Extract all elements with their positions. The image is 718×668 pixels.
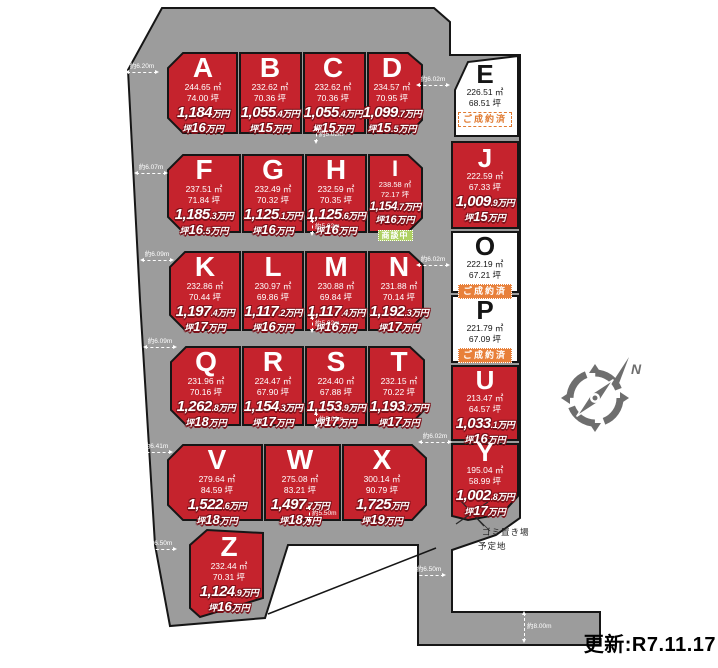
tsubo-prefix: 坪 — [208, 603, 217, 613]
price-value: 1,125 — [244, 206, 279, 223]
tsubo-value: 16 — [191, 120, 205, 135]
dimension-marker: 約6.02m — [418, 76, 448, 86]
price-unit: .3万円 — [405, 308, 429, 318]
price-value: 1,033 — [456, 415, 491, 432]
plot-Q-letter: Q — [173, 349, 239, 376]
plot-O-area-tsubo: 67.21 坪 — [452, 270, 518, 281]
plot-B-price: 1,055.4万円 — [238, 105, 302, 122]
price-unit: .1万円 — [491, 420, 515, 430]
tsubo-unit: 万円 — [208, 323, 226, 333]
dimension-arrow — [142, 260, 172, 261]
dimension-text: 約6.02m — [423, 433, 448, 440]
dimension-arrow — [418, 265, 448, 266]
plot-J-letter: J — [452, 146, 518, 171]
plot-B-letter: B — [238, 55, 302, 82]
plot-N-tsubo-price: 坪17万円 — [367, 320, 431, 334]
tsubo-value: 18 — [194, 414, 208, 429]
plot-T-price: 1,193.7万円 — [367, 399, 431, 416]
dimension-text: 約8.00m — [527, 623, 552, 630]
tsubo-unit: 万円 — [488, 507, 506, 517]
dimension-arrow — [141, 452, 171, 453]
plot-Q-tsubo-price: 坪18万円 — [173, 415, 239, 429]
plot-F: F237.51 ㎡71.84 坪1,185.3万円坪16.5万円 — [170, 157, 238, 237]
price-unit: .7万円 — [397, 202, 421, 212]
plot-T: T232.15 ㎡70.22 坪1,193.7万円坪17万円 — [367, 349, 431, 429]
dimension-marker: 約6.02m — [418, 256, 448, 266]
tsubo-unit: 万円 — [402, 418, 420, 428]
tsubo-prefix: 坪 — [196, 516, 205, 526]
plot-O: O222.19 ㎡67.21 坪ご成約済 — [452, 234, 518, 299]
plot-H-area-tsubo: 70.35 坪 — [304, 195, 368, 206]
price-unit: .9万円 — [491, 198, 515, 208]
plot-R-area-m2: 224.47 ㎡ — [241, 376, 305, 387]
price-value: 1,197 — [176, 303, 211, 320]
price-value: 1,497 — [271, 496, 306, 513]
plot-T-area-tsubo: 70.22 坪 — [367, 387, 431, 398]
dimension-text: 約6.20m — [130, 63, 155, 70]
plot-O-area-m2: 222.19 ㎡ — [452, 259, 518, 270]
tsubo-prefix: 坪 — [361, 516, 370, 526]
tsubo-prefix: 坪 — [184, 323, 193, 333]
price-unit: .7万円 — [405, 403, 429, 413]
dimension-marker: 約6.20m — [127, 63, 157, 73]
dimension-marker: 約6.07m — [136, 164, 166, 174]
update-date: 更新:R7.11.17 — [584, 628, 716, 657]
plot-L-price: 1,117.2万円 — [241, 304, 305, 321]
price-unit: .2万円 — [278, 308, 302, 318]
plot-P-area-m2: 221.79 ㎡ — [452, 323, 518, 334]
dimension-text: 約6.02m — [421, 76, 446, 83]
plot-C: C232.62 ㎡70.36 坪1,055.4万円坪15万円 — [301, 55, 365, 135]
dimension-arrow — [316, 128, 317, 142]
price-value: 1,185 — [175, 206, 210, 223]
tsubo-unit: 万円 — [397, 215, 415, 225]
plot-V-letter: V — [176, 447, 258, 474]
plot-H-area-m2: 232.59 ㎡ — [304, 184, 368, 195]
dimension-arrow — [524, 613, 525, 641]
plot-Z-area-tsubo: 70.31 坪 — [196, 572, 262, 583]
tsubo-value: 17 — [387, 319, 401, 334]
plot-A-area-m2: 244.65 ㎡ — [170, 82, 236, 93]
dimension-text: 約6.02m — [421, 256, 446, 263]
dimension-text: 約5.02m — [319, 131, 344, 138]
tsubo-unit: 万円 — [273, 124, 291, 134]
plot-P: P221.79 ㎡67.09 坪ご成約済 — [452, 298, 518, 363]
price-value: 1,117 — [244, 303, 278, 320]
boundary-line — [268, 548, 436, 614]
dimension-arrow — [145, 347, 175, 348]
tsubo-unit: 万円 — [276, 226, 294, 236]
plot-X-price: 1,725万円 — [341, 497, 423, 514]
plot-U: U213.47 ㎡64.57 坪1,033.1万円坪16万円 — [452, 368, 518, 447]
plot-U-area-m2: 213.47 ㎡ — [452, 393, 518, 404]
plot-R-price: 1,154.3万円 — [241, 399, 305, 416]
plot-I-price: 1,154.7万円 — [366, 200, 424, 213]
price-unit: .4万円 — [211, 308, 235, 318]
plot-Z-price: 1,124.9万円 — [196, 584, 262, 601]
tsubo-unit: .5万円 — [391, 124, 417, 134]
tsubo-value: 15 — [258, 120, 272, 135]
plot-E-area-tsubo: 68.51 坪 — [452, 98, 518, 109]
price-value: 1,154 — [244, 398, 279, 415]
tsubo-unit: 万円 — [276, 418, 294, 428]
plot-Y-price: 1,002.8万円 — [452, 488, 518, 505]
tsubo-unit: 万円 — [339, 323, 357, 333]
price-value: 1,002 — [456, 487, 491, 504]
plot-F-tsubo-price: 坪16.5万円 — [170, 223, 238, 237]
price-unit: .4万円 — [341, 308, 365, 318]
price-value: 1,009 — [456, 193, 491, 210]
dimension-marker: 約6.09m — [145, 338, 175, 348]
plot-G-tsubo-price: 坪16万円 — [241, 223, 305, 237]
price-unit: .1万円 — [279, 211, 303, 221]
dimension-text: 約5.02m — [315, 223, 340, 230]
trash-site-label-line2: 予定地 — [478, 542, 507, 551]
plot-K-area-tsubo: 70.44 坪 — [172, 292, 238, 303]
plot-H-letter: H — [304, 157, 368, 184]
dimension-marker: 約6.50m — [414, 566, 444, 576]
price-value: 1,184 — [177, 104, 212, 121]
tsubo-prefix: 坪 — [180, 226, 189, 236]
plot-K-tsubo-price: 坪17万円 — [172, 320, 238, 334]
plot-Q-area-m2: 231.96 ㎡ — [173, 376, 239, 387]
plot-L-letter: L — [241, 254, 305, 281]
plot-A-area-tsubo: 74.00 坪 — [170, 93, 236, 104]
north-arrow-icon — [612, 357, 629, 386]
plot-C-area-tsubo: 70.36 坪 — [301, 93, 365, 104]
plot-B-area-tsubo: 70.36 坪 — [238, 93, 302, 104]
plot-V-area-tsubo: 84.59 坪 — [176, 485, 258, 496]
tsubo-value: 16 — [261, 222, 275, 237]
plot-K-letter: K — [172, 254, 238, 281]
north-label: N — [631, 361, 642, 377]
dimension-marker: 約5.02m — [312, 317, 340, 331]
plot-J-tsubo-price: 坪15万円 — [452, 210, 518, 224]
plot-F-area-m2: 237.51 ㎡ — [170, 184, 238, 195]
plot-B-tsubo-price: 坪15万円 — [238, 121, 302, 135]
tsubo-prefix: 坪 — [249, 124, 258, 134]
plot-D: D234.57 ㎡70.95 坪1,099.7万円坪15.5万円 — [360, 55, 424, 135]
plot-X: X300.14 ㎡90.79 坪1,725万円坪19万円 — [341, 447, 423, 527]
plot-A-letter: A — [170, 55, 236, 82]
price-value: 1,055 — [304, 104, 339, 121]
dimension-text: 約5.02m — [315, 320, 340, 327]
dimension-marker: 約8.00m — [524, 613, 552, 641]
plot-N-area-tsubo: 70.14 坪 — [367, 292, 431, 303]
tsubo-prefix: 坪 — [182, 124, 191, 134]
plot-P-status-badge: ご成約済 — [458, 348, 512, 363]
plot-R-area-tsubo: 67.90 坪 — [241, 387, 305, 398]
dimension-arrow — [127, 72, 157, 73]
tsubo-prefix: 坪 — [252, 226, 261, 236]
price-value: 1,154 — [369, 199, 397, 213]
price-unit: .7万円 — [398, 109, 422, 119]
plot-S-letter: S — [304, 349, 368, 376]
plot-K-area-m2: 232.86 ㎡ — [172, 281, 238, 292]
price-value: 1,522 — [188, 496, 223, 513]
tsubo-value: 18 — [205, 512, 219, 527]
land-subdivision-map: N ゴミ置き場 予定地 更新:R7.11.17 A244.65 ㎡74.00 坪… — [0, 0, 718, 668]
tsubo-value: 19 — [370, 512, 384, 527]
tsubo-value: 17 — [261, 414, 275, 429]
plot-J: J222.59 ㎡67.33 坪1,009.9万円坪15万円 — [452, 146, 518, 225]
plot-W-letter: W — [259, 447, 341, 474]
compass-icon: N — [561, 357, 642, 432]
dimension-marker: 約5.02m — [316, 128, 344, 142]
plot-N-area-m2: 231.88 ㎡ — [367, 281, 431, 292]
plot-Q: Q231.96 ㎡70.16 坪1,262.8万円坪18万円 — [173, 349, 239, 429]
plot-O-letter: O — [452, 234, 518, 259]
plot-W-area-m2: 275.08 ㎡ — [259, 474, 341, 485]
plot-I-area-tsubo: 72.17 坪 — [366, 190, 424, 200]
price-value: 1,725 — [356, 496, 391, 513]
price-value: 1,193 — [370, 398, 405, 415]
plot-X-tsubo-price: 坪19万円 — [341, 513, 423, 527]
tsubo-unit: 万円 — [232, 603, 250, 613]
tsubo-value: 16 — [189, 222, 203, 237]
plot-D-area-m2: 234.57 ㎡ — [360, 82, 424, 93]
plot-T-area-m2: 232.15 ㎡ — [367, 376, 431, 387]
plot-F-letter: F — [170, 157, 238, 184]
plot-D-letter: D — [360, 55, 424, 82]
tsubo-unit: 万円 — [276, 323, 294, 333]
price-unit: .4万円 — [276, 109, 300, 119]
tsubo-value: 16 — [384, 214, 396, 226]
dimension-text: 約5.50m — [312, 510, 337, 517]
dimension-text: 約5.02m — [319, 416, 344, 423]
price-unit: 万円 — [212, 109, 229, 119]
price-unit: .6万円 — [342, 211, 366, 221]
tsubo-prefix: 坪 — [185, 418, 194, 428]
plot-L-area-m2: 230.97 ㎡ — [241, 281, 305, 292]
plot-Z-tsubo-price: 坪16万円 — [196, 600, 262, 614]
dimension-marker: 約6.02m — [420, 433, 450, 443]
plot-I-tsubo-price: 坪16万円 — [366, 214, 424, 226]
trash-site-label-line1: ゴミ置き場 — [482, 528, 530, 537]
plot-Y-letter: Y — [452, 440, 518, 465]
plot-P-area-tsubo: 67.09 坪 — [452, 334, 518, 345]
tsubo-value: 17 — [473, 503, 487, 518]
tsubo-prefix: 坪 — [378, 418, 387, 428]
tsubo-unit: 万円 — [402, 323, 420, 333]
tsubo-unit: 万円 — [206, 124, 224, 134]
price-unit: .3万円 — [279, 403, 303, 413]
dimension-arrow — [316, 413, 317, 427]
tsubo-unit: 万円 — [339, 226, 357, 236]
plot-J-price: 1,009.9万円 — [452, 194, 518, 211]
plot-C-price: 1,055.4万円 — [301, 105, 365, 122]
price-unit: .6万円 — [223, 501, 247, 511]
plot-N-price: 1,192.3万円 — [367, 304, 431, 321]
plot-Y: Y195.04 ㎡58.99 坪1,002.8万円坪17万円 — [452, 440, 518, 519]
plot-M-area-tsubo: 69.84 坪 — [304, 292, 368, 303]
tsubo-value: 15 — [377, 120, 391, 135]
plot-D-area-tsubo: 70.95 坪 — [360, 93, 424, 104]
plot-I-letter: I — [366, 159, 424, 180]
plot-B: B232.62 ㎡70.36 坪1,055.4万円坪15万円 — [238, 55, 302, 135]
plot-W-area-tsubo: 83.21 坪 — [259, 485, 341, 496]
price-unit: .3万円 — [210, 211, 234, 221]
plot-I-area-m2: 238.58 ㎡ — [366, 180, 424, 190]
plot-A-price: 1,184万円 — [170, 105, 236, 122]
tsubo-value: 17 — [387, 414, 401, 429]
dimension-arrow — [145, 549, 175, 550]
dimension-marker: 約6.41m — [141, 443, 171, 453]
price-unit: .8万円 — [491, 492, 515, 502]
price-value: 1,192 — [370, 303, 405, 320]
plot-R-tsubo-price: 坪17万円 — [241, 415, 305, 429]
plot-Y-area-m2: 195.04 ㎡ — [452, 465, 518, 476]
plot-M-area-m2: 230.88 ㎡ — [304, 281, 368, 292]
plot-Z: Z232.44 ㎡70.31 坪1,124.9万円坪16万円 — [196, 534, 262, 614]
tsubo-unit: 万円 — [209, 418, 227, 428]
plot-R: R224.47 ㎡67.90 坪1,154.3万円坪17万円 — [241, 349, 305, 429]
dimension-text: 約6.41m — [144, 443, 169, 450]
dimension-arrow — [420, 442, 450, 443]
plot-X-area-m2: 300.14 ㎡ — [341, 474, 423, 485]
price-value: 1,099 — [363, 104, 398, 121]
price-unit: .4万円 — [339, 109, 363, 119]
tsubo-value: 16 — [217, 599, 231, 614]
price-value: 1,262 — [177, 398, 212, 415]
dimension-marker: 約5.02m — [316, 413, 344, 427]
plot-R-letter: R — [241, 349, 305, 376]
plot-G-area-tsubo: 70.32 坪 — [241, 195, 305, 206]
tsubo-unit: .5万円 — [203, 226, 229, 236]
tsubo-value: 18 — [288, 512, 302, 527]
tsubo-prefix: 坪 — [252, 323, 261, 333]
price-unit: .8万円 — [212, 403, 236, 413]
plot-E-letter: E — [452, 62, 518, 87]
dimension-text: 約6.09m — [145, 251, 170, 258]
plot-C-letter: C — [301, 55, 365, 82]
plot-Y-area-tsubo: 58.99 坪 — [452, 476, 518, 487]
plot-V-tsubo-price: 坪18万円 — [176, 513, 258, 527]
plot-S-area-tsubo: 67.88 坪 — [304, 387, 368, 398]
plot-I: I238.58 ㎡72.17 坪1,154.7万円坪16万円商談中 — [366, 159, 424, 242]
plot-L: L230.97 ㎡69.86 坪1,117.2万円坪16万円 — [241, 254, 305, 334]
tsubo-prefix: 坪 — [368, 124, 377, 134]
plot-G: G232.49 ㎡70.32 坪1,125.1万円坪16万円 — [241, 157, 305, 237]
tsubo-prefix: 坪 — [464, 213, 473, 223]
dimension-marker: 約6.09m — [142, 251, 172, 261]
plot-U-letter: U — [452, 368, 518, 393]
price-value: 1,124 — [200, 583, 235, 600]
dimension-arrow — [312, 317, 313, 331]
plot-V: V279.64 ㎡84.59 坪1,522.6万円坪18万円 — [176, 447, 258, 527]
price-value: 1,055 — [241, 104, 276, 121]
dimension-marker: 約5.02m — [312, 220, 340, 234]
plot-Y-tsubo-price: 坪17万円 — [452, 504, 518, 518]
plot-G-area-m2: 232.49 ㎡ — [241, 184, 305, 195]
plot-K-price: 1,197.4万円 — [172, 304, 238, 321]
plot-F-area-tsubo: 71.84 坪 — [170, 195, 238, 206]
tsubo-prefix: 坪 — [378, 323, 387, 333]
tsubo-unit: 万円 — [385, 516, 403, 526]
plot-J-area-m2: 222.59 ㎡ — [452, 171, 518, 182]
tsubo-unit: 万円 — [488, 213, 506, 223]
dimension-arrow — [414, 575, 444, 576]
tsubo-prefix: 坪 — [252, 418, 261, 428]
plot-Z-area-m2: 232.44 ㎡ — [196, 561, 262, 572]
dimension-text: 約6.50m — [148, 540, 173, 547]
plot-J-area-tsubo: 67.33 坪 — [452, 182, 518, 193]
plot-V-price: 1,522.6万円 — [176, 497, 258, 514]
plot-E: E226.51 ㎡68.51 坪ご成約済 — [452, 62, 518, 127]
plot-G-price: 1,125.1万円 — [241, 207, 305, 224]
price-unit: .9万円 — [342, 403, 366, 413]
plot-G-letter: G — [241, 157, 305, 184]
tsubo-value: 17 — [193, 319, 207, 334]
plot-T-letter: T — [367, 349, 431, 376]
dimension-text: 約6.09m — [148, 338, 173, 345]
dimension-arrow — [312, 220, 313, 234]
tsubo-prefix: 坪 — [279, 516, 288, 526]
plot-T-tsubo-price: 坪17万円 — [367, 415, 431, 429]
plot-Q-price: 1,262.8万円 — [173, 399, 239, 416]
plot-A-tsubo-price: 坪16万円 — [170, 121, 236, 135]
plot-F-price: 1,185.3万円 — [170, 207, 238, 224]
price-unit: 万円 — [391, 501, 408, 511]
plot-L-area-tsubo: 69.86 坪 — [241, 292, 305, 303]
dimension-arrow — [136, 173, 166, 174]
plot-P-letter: P — [452, 298, 518, 323]
plot-A: A244.65 ㎡74.00 坪1,184万円坪16万円 — [170, 55, 236, 135]
plot-E-area-m2: 226.51 ㎡ — [452, 87, 518, 98]
plot-K: K232.86 ㎡70.44 坪1,197.4万円坪17万円 — [172, 254, 238, 334]
plot-Q-area-tsubo: 70.16 坪 — [173, 387, 239, 398]
plot-D-price: 1,099.7万円 — [360, 105, 424, 122]
plot-V-area-m2: 279.64 ㎡ — [176, 474, 258, 485]
plot-I-status-badge: 商談中 — [378, 230, 413, 242]
dimension-text: 約6.50m — [417, 566, 442, 573]
dimension-arrow — [418, 85, 448, 86]
tsubo-prefix: 坪 — [464, 507, 473, 517]
dimension-marker: 約6.50m — [145, 540, 175, 550]
plot-X-area-tsubo: 90.79 坪 — [341, 485, 423, 496]
price-unit: .9万円 — [235, 588, 259, 598]
plot-X-letter: X — [341, 447, 423, 474]
dimension-text: 約6.07m — [139, 164, 164, 171]
dimension-marker: 約5.50m — [309, 507, 337, 521]
tsubo-value: 16 — [261, 319, 275, 334]
plot-Z-letter: Z — [196, 534, 262, 561]
plot-B-area-m2: 232.62 ㎡ — [238, 82, 302, 93]
plot-M-letter: M — [304, 254, 368, 281]
plot-S-area-m2: 224.40 ㎡ — [304, 376, 368, 387]
plot-D-tsubo-price: 坪15.5万円 — [360, 121, 424, 135]
plot-C-area-m2: 232.62 ㎡ — [301, 82, 365, 93]
tsubo-unit: 万円 — [220, 516, 238, 526]
plot-L-tsubo-price: 坪16万円 — [241, 320, 305, 334]
plot-U-area-tsubo: 64.57 坪 — [452, 404, 518, 415]
plot-E-status-badge: ご成約済 — [458, 112, 512, 127]
tsubo-value: 15 — [473, 209, 487, 224]
plot-U-price: 1,033.1万円 — [452, 416, 518, 433]
dimension-arrow — [309, 507, 310, 521]
